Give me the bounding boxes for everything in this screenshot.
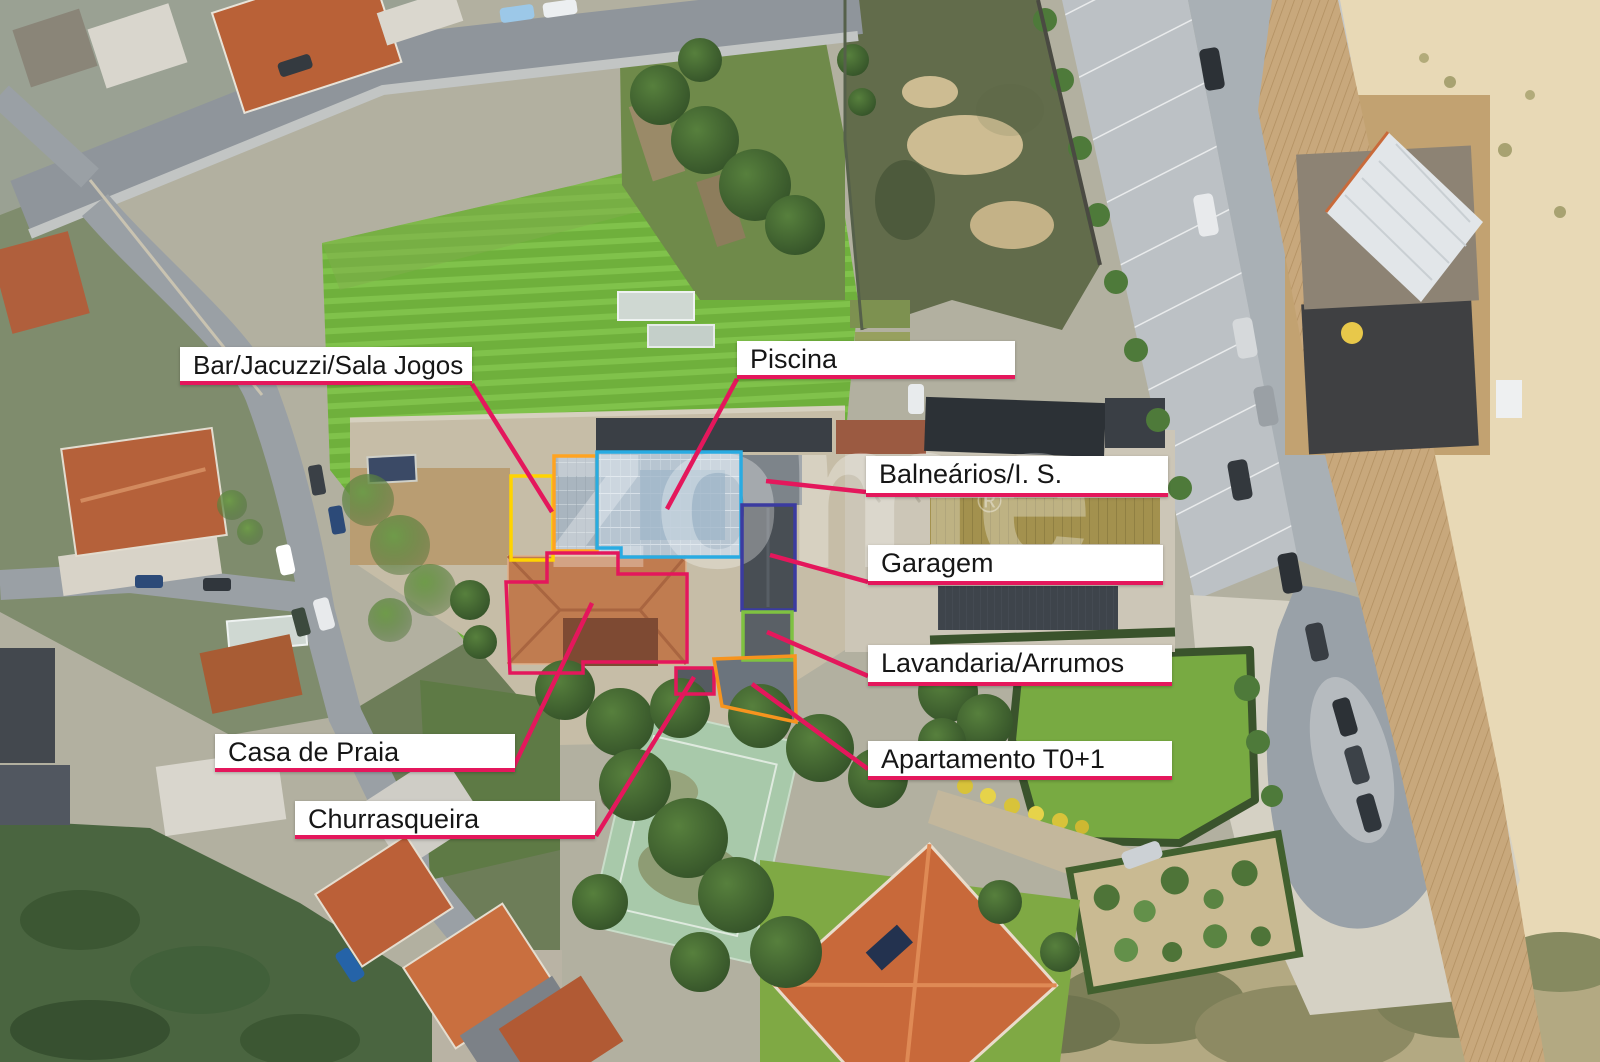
- annotation-overlay: [0, 0, 1600, 1062]
- outline-churrasqueira: [676, 668, 714, 694]
- outline-apartamento: [714, 656, 796, 722]
- leader-lavandaria: [767, 632, 868, 676]
- outline-bar-greenhouse: [554, 456, 597, 551]
- leader-balnearios: [766, 481, 866, 492]
- label-bar-jacuzzi-sala-jogos: Bar/Jacuzzi/Sala Jogos: [180, 347, 472, 385]
- outline-lavandaria: [743, 612, 792, 660]
- outline-casa-de-praia: [506, 553, 687, 673]
- label-casa-de-praia: Casa de Praia: [215, 734, 515, 772]
- outline-bar-courtyard: [511, 476, 553, 560]
- leader-garagem: [770, 555, 868, 582]
- annotated-aerial-photo: zome ® Bar/Jacuzzi/Sala Jogos Piscina Ba…: [0, 0, 1600, 1062]
- leader-casa: [513, 603, 592, 768]
- feature-outlines: [506, 452, 796, 722]
- leader-churrasqueira: [596, 677, 694, 836]
- label-lavandaria-arrumos: Lavandaria/Arrumos: [868, 645, 1172, 686]
- leader-lines: [472, 379, 868, 836]
- leader-apartamento: [752, 684, 868, 769]
- leader-piscina: [667, 379, 737, 509]
- label-churrasqueira: Churrasqueira: [295, 801, 595, 839]
- label-balnearios: Balneários/I. S.: [866, 456, 1168, 497]
- label-apartamento-t0-1: Apartamento T0+1: [868, 741, 1172, 780]
- label-piscina: Piscina: [737, 341, 1015, 379]
- label-garagem: Garagem: [868, 545, 1163, 585]
